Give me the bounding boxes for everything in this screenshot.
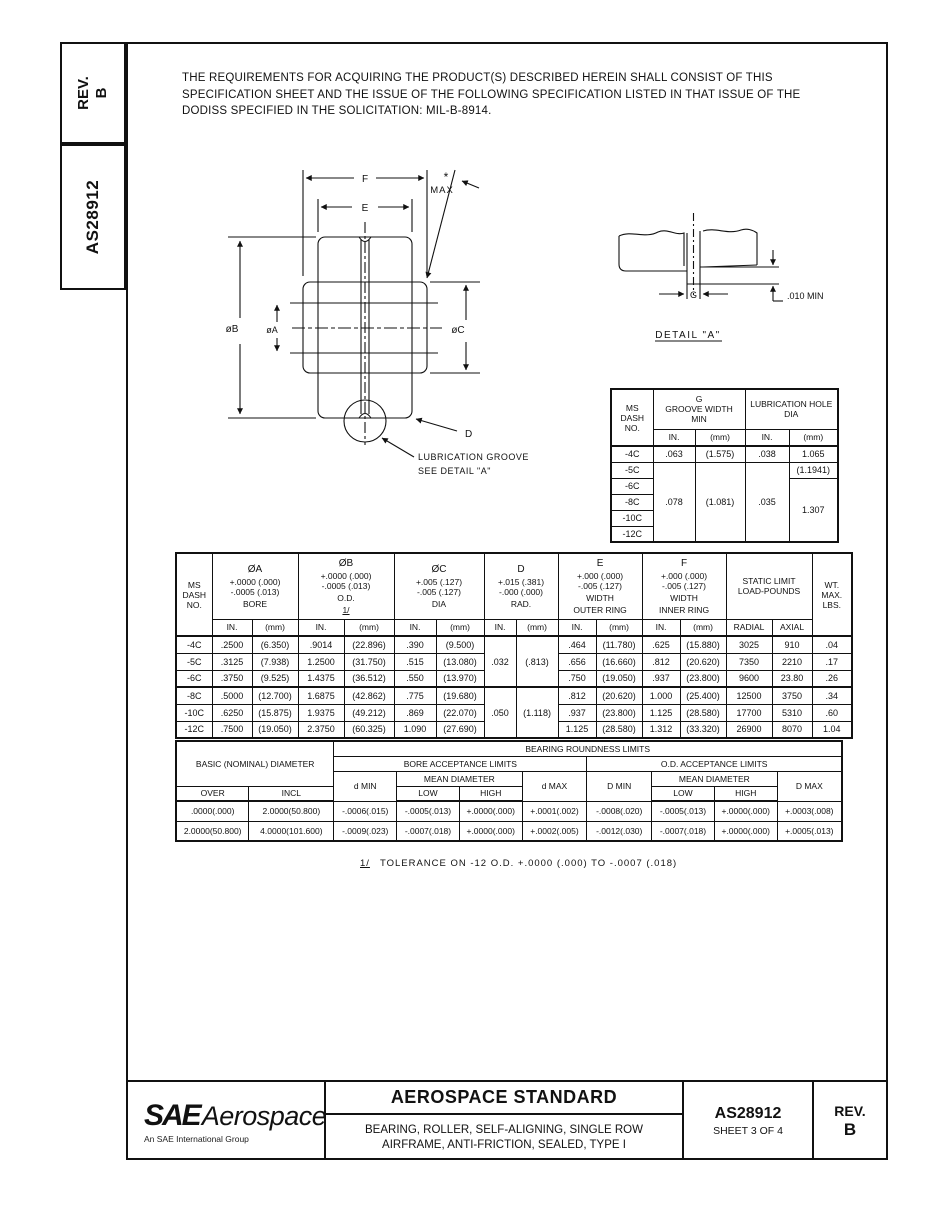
dim-col-d: D +.015 (.381) -.000 (.000) RAD. bbox=[484, 553, 558, 619]
dim-cell: .2500 bbox=[212, 636, 252, 653]
d-leader-line bbox=[416, 419, 457, 431]
dim-sub-f-in: IN. bbox=[642, 619, 680, 636]
dim-sub-b-mm: (mm) bbox=[344, 619, 394, 636]
dim-sub-a-mm: (mm) bbox=[252, 619, 298, 636]
dim-dash-12c: -12C bbox=[176, 721, 212, 738]
roundness-Dmin-header: D MIN bbox=[587, 771, 652, 801]
dim-col-f-name2: INNER RING bbox=[644, 605, 725, 615]
intro-paragraph: THE REQUIREMENTS FOR ACQUIRING THE PRODU… bbox=[182, 70, 862, 120]
dim-cell: .04 bbox=[812, 636, 852, 653]
roundness-cell: -.0005(.013) bbox=[397, 801, 460, 821]
dimension-table: MS DASH NO. ØA +.0000 (.000) -.0005 (.01… bbox=[175, 552, 853, 739]
dim-col-d-name: RAD. bbox=[486, 599, 557, 609]
roundness-cell: -.0012(.030) bbox=[587, 821, 652, 841]
roundness-cell: +.0000(.000) bbox=[714, 801, 777, 821]
sidebar-rev-box: REV. B bbox=[60, 42, 126, 144]
dim-cell: 1.000 bbox=[642, 687, 680, 704]
footnote: 1/TOLERANCE ON -12 O.D. +.0000 (.000) TO… bbox=[360, 858, 677, 869]
dim-sub-a-in: IN. bbox=[212, 619, 252, 636]
groove-table: MS DASH NO. G GROOVE WIDTH MIN LUBRICATI… bbox=[610, 388, 839, 543]
footer-sheet-number: SHEET 3 OF 4 bbox=[713, 1125, 783, 1137]
standard-subtitle-line1: BEARING, ROLLER, SELF-ALIGNING, SINGLE R… bbox=[365, 1123, 643, 1138]
dim-col-dash: MS DASH NO. bbox=[176, 553, 212, 636]
label-e: E bbox=[362, 203, 369, 214]
dim-cell: (42.862) bbox=[344, 687, 394, 704]
groove-g-in-merged: .078 bbox=[653, 462, 695, 542]
dim-cell: 12500 bbox=[726, 687, 772, 704]
sidebar-doc-number: AS28912 bbox=[83, 180, 103, 254]
dim-cell: 26900 bbox=[726, 721, 772, 738]
roundness-dmax-header: d MAX bbox=[522, 771, 587, 801]
roundness-Dmax-header: D MAX bbox=[777, 771, 842, 801]
dim-cell: (13.970) bbox=[436, 670, 484, 687]
dim-sub-d-mm: (mm) bbox=[516, 619, 558, 636]
dim-cell: .937 bbox=[642, 670, 680, 687]
roundness-cell: -.0006(.015) bbox=[334, 801, 397, 821]
roundness-table: BASIC (NOMINAL) DIAMETER BEARING ROUNDNE… bbox=[175, 740, 843, 842]
groove-subcol-in2: IN. bbox=[745, 429, 789, 446]
dim-sub-e-in: IN. bbox=[558, 619, 596, 636]
dim-sub-radial: RADIAL bbox=[726, 619, 772, 636]
groove-col-g: G GROOVE WIDTH MIN bbox=[653, 389, 745, 429]
dim-cell: (7.938) bbox=[252, 653, 298, 670]
groove-dash-8c: -8C bbox=[611, 494, 653, 510]
dim-sub-e-mm: (mm) bbox=[596, 619, 642, 636]
roundness-cell: +.0002(.005) bbox=[522, 821, 587, 841]
roundness-od-high-header: HIGH bbox=[714, 786, 777, 801]
dim-cell: .812 bbox=[642, 653, 680, 670]
label-dia-b: øB bbox=[226, 324, 239, 335]
dim-dash-4c: -4C bbox=[176, 636, 212, 653]
roundness-cell: -.0007(.018) bbox=[397, 821, 460, 841]
dim-cell: .550 bbox=[394, 670, 436, 687]
footer-center-cell: AEROSPACE STANDARD BEARING, ROLLER, SELF… bbox=[326, 1082, 684, 1160]
dim-cell: .390 bbox=[394, 636, 436, 653]
roundness-od-mean-header: MEAN DIAMETER bbox=[652, 771, 777, 786]
dim-col-d-tol-plus: +.015 (.381) bbox=[486, 577, 557, 587]
spec-sheet-page: REV. B AS28912 THE REQUIREMENTS FOR ACQU… bbox=[0, 0, 950, 1230]
dim-cell: (25.400) bbox=[680, 687, 726, 704]
sae-logo-text: SAE bbox=[144, 1099, 200, 1133]
dim-cell: .869 bbox=[394, 704, 436, 721]
dim-col-e-name2: OUTER RING bbox=[560, 605, 641, 615]
dim-cell: .3125 bbox=[212, 653, 252, 670]
dim-col-b-symbol: ØB bbox=[300, 558, 393, 569]
dim-cell: (36.512) bbox=[344, 670, 394, 687]
sidebar-rev-text: REV. B bbox=[75, 76, 111, 110]
dim-cell: (28.580) bbox=[680, 704, 726, 721]
detail-left-surface bbox=[619, 236, 687, 271]
dim-sub-c-in: IN. bbox=[394, 619, 436, 636]
label-detail-min: .010 MIN bbox=[787, 291, 824, 301]
footer-title-block: SAE Aerospace An SAE International Group… bbox=[126, 1080, 888, 1160]
roundness-bore-header: BORE ACCEPTANCE LIMITS bbox=[334, 756, 587, 771]
groove-dash-10c: -10C bbox=[611, 510, 653, 526]
dim-d-in-group2: .050 bbox=[484, 687, 516, 738]
roundness-cell: +.0000(.000) bbox=[714, 821, 777, 841]
footer-rev-label: REV. bbox=[834, 1103, 865, 1119]
footer-logo-cell: SAE Aerospace An SAE International Group bbox=[126, 1082, 326, 1160]
dim-col-e-name: WIDTH bbox=[560, 593, 641, 603]
dim-col-c-name: DIA bbox=[396, 599, 483, 609]
dim-cell: .7500 bbox=[212, 721, 252, 738]
dim-col-c: ØC +.005 (.127) -.005 (.127) DIA bbox=[394, 553, 484, 619]
dim-col-c-tol-plus: +.005 (.127) bbox=[396, 577, 483, 587]
detail-right-surface bbox=[700, 265, 779, 267]
dim-col-a: ØA +.0000 (.000) -.0005 (.013) BORE bbox=[212, 553, 298, 619]
groove-g-mm-4c: (1.575) bbox=[695, 446, 745, 462]
dim-col-e-symbol: E bbox=[560, 558, 641, 569]
dim-cell: (9.500) bbox=[436, 636, 484, 653]
dim-cell: .5000 bbox=[212, 687, 252, 704]
dim-sub-axial: AXIAL bbox=[772, 619, 812, 636]
dim-cell: (23.800) bbox=[596, 704, 642, 721]
dim-cell: (6.350) bbox=[252, 636, 298, 653]
footnote-text: TOLERANCE ON -12 O.D. +.0000 (.000) TO -… bbox=[380, 858, 677, 869]
dim-cell: (60.325) bbox=[344, 721, 394, 738]
dim-d-mm-group1: (.813) bbox=[516, 636, 558, 687]
label-lube-line2: SEE DETAIL "A" bbox=[418, 466, 491, 476]
table-row: -4C .2500(6.350) .9014(22.896) .390(9.50… bbox=[176, 636, 852, 653]
dim-col-a-symbol: ØA bbox=[214, 564, 297, 575]
dim-cell: 1.9375 bbox=[298, 704, 344, 721]
dim-cell: .515 bbox=[394, 653, 436, 670]
roundness-incl-header: INCL bbox=[249, 786, 334, 801]
footer-doc-number: AS28912 bbox=[715, 1105, 782, 1123]
label-detail-g: G bbox=[690, 290, 697, 300]
dim-cell: .17 bbox=[812, 653, 852, 670]
sidebar-doc-box: AS28912 bbox=[60, 144, 126, 290]
dim-cell: .26 bbox=[812, 670, 852, 687]
roundness-cell: +.0000(.000) bbox=[459, 801, 522, 821]
dim-col-d-tol-minus: -.000 (.000) bbox=[486, 587, 557, 597]
dim-cell: .60 bbox=[812, 704, 852, 721]
dim-cell: 7350 bbox=[726, 653, 772, 670]
dim-col-b-name: O.D. bbox=[300, 593, 393, 603]
dim-col-b-footnote-ref: 1/ bbox=[300, 605, 393, 615]
dim-dash-6c: -6C bbox=[176, 670, 212, 687]
standard-subtitle: BEARING, ROLLER, SELF-ALIGNING, SINGLE R… bbox=[326, 1115, 682, 1160]
roundness-cell: .0000(.000) bbox=[176, 801, 249, 821]
dim-cell: 2210 bbox=[772, 653, 812, 670]
dim-col-d-symbol: D bbox=[486, 564, 557, 575]
dim-cell: 2.3750 bbox=[298, 721, 344, 738]
footer-rev-value: B bbox=[844, 1120, 856, 1140]
dim-col-e: E +.000 (.000) -.005 (.127) WIDTH OUTER … bbox=[558, 553, 642, 619]
roundness-cell: -.0005(.013) bbox=[652, 801, 715, 821]
groove-hole-mm-5c: (1.1941) bbox=[789, 462, 838, 478]
roundness-cell: +.0001(.002) bbox=[522, 801, 587, 821]
dim-col-e-tol-plus: +.000 (.000) bbox=[560, 571, 641, 581]
dim-col-static: STATIC LIMIT LOAD-POUNDS bbox=[726, 553, 812, 619]
roundness-over-header: OVER bbox=[176, 786, 249, 801]
groove-subcol-mm: (mm) bbox=[695, 429, 745, 446]
roundness-cell: +.0000(.000) bbox=[459, 821, 522, 841]
dim-cell: (20.620) bbox=[680, 653, 726, 670]
dim-cell: 1.6875 bbox=[298, 687, 344, 704]
dim-cell: .656 bbox=[558, 653, 596, 670]
dim-cell: (13.080) bbox=[436, 653, 484, 670]
footnote-ref: 1/ bbox=[360, 858, 370, 869]
dim-cell: 910 bbox=[772, 636, 812, 653]
groove-hole-mm-merged: 1.307 bbox=[789, 478, 838, 542]
dim-col-b: ØB +.0000 (.000) -.0005 (.013) O.D. 1/ bbox=[298, 553, 394, 619]
groove-hole-in-merged: .035 bbox=[745, 462, 789, 542]
dim-dash-10c: -10C bbox=[176, 704, 212, 721]
dim-cell: (19.050) bbox=[596, 670, 642, 687]
dim-col-c-symbol: ØC bbox=[396, 564, 483, 575]
roundness-cell: 2.0000(50.800) bbox=[176, 821, 249, 841]
dim-cell: .775 bbox=[394, 687, 436, 704]
sae-aerospace-logo: SAE Aerospace bbox=[144, 1099, 324, 1133]
groove-subcol-in: IN. bbox=[653, 429, 695, 446]
dim-cell: .3750 bbox=[212, 670, 252, 687]
dim-col-f-name: WIDTH bbox=[644, 593, 725, 603]
lube-leader-line bbox=[382, 438, 414, 457]
dim-col-a-name: BORE bbox=[214, 599, 297, 609]
dim-sub-b-in: IN. bbox=[298, 619, 344, 636]
roundness-cell: -.0007(.018) bbox=[652, 821, 715, 841]
roundness-cell: +.0003(.008) bbox=[777, 801, 842, 821]
dim-cell: 1.090 bbox=[394, 721, 436, 738]
dim-cell: .464 bbox=[558, 636, 596, 653]
dim-cell: .34 bbox=[812, 687, 852, 704]
label-detail-title: DETAIL "A" bbox=[655, 330, 720, 341]
dim-cell: .9014 bbox=[298, 636, 344, 653]
roundness-cell: 4.0000(101.600) bbox=[249, 821, 334, 841]
dim-cell: (23.800) bbox=[680, 670, 726, 687]
detail-right-block-top bbox=[703, 229, 757, 265]
dim-col-f-symbol: F bbox=[644, 558, 725, 569]
label-asterisk: * bbox=[444, 170, 449, 184]
table-row: -5C .078 (1.081) .035 (1.1941) bbox=[611, 462, 838, 478]
roundness-bore-low-header: LOW bbox=[397, 786, 460, 801]
dim-col-f: F +.000 (.000) -.005 (.127) WIDTH INNER … bbox=[642, 553, 726, 619]
groove-dash-5c: -5C bbox=[611, 462, 653, 478]
dim-col-f-tol-minus: -.005 (.127) bbox=[644, 581, 725, 591]
footer-number-cell: AS28912 SHEET 3 OF 4 bbox=[684, 1082, 814, 1160]
groove-subcol-mm2: (mm) bbox=[789, 429, 838, 446]
dim-cell: (9.525) bbox=[252, 670, 298, 687]
dim-col-b-tol-plus: +.0000 (.000) bbox=[300, 571, 393, 581]
dim-cell: (20.620) bbox=[596, 687, 642, 704]
dim-cell: 1.2500 bbox=[298, 653, 344, 670]
roundness-cell: 2.0000(50.800) bbox=[249, 801, 334, 821]
dim-col-c-tol-minus: -.005 (.127) bbox=[396, 587, 483, 597]
groove-col-dash: MS DASH NO. bbox=[611, 389, 653, 446]
dim-cell: (15.875) bbox=[252, 704, 298, 721]
roundness-od-header: O.D. ACCEPTANCE LIMITS bbox=[587, 756, 842, 771]
dim-cell: 1.04 bbox=[812, 721, 852, 738]
dim-cell: .812 bbox=[558, 687, 596, 704]
dim-sub-f-mm: (mm) bbox=[680, 619, 726, 636]
dim-cell: .937 bbox=[558, 704, 596, 721]
dim-cell: (11.780) bbox=[596, 636, 642, 653]
dim-d-mm-group2: (1.118) bbox=[516, 687, 558, 738]
label-max: MAX bbox=[430, 185, 454, 196]
dim-col-a-tol-plus: +.0000 (.000) bbox=[214, 577, 297, 587]
groove-hole-mm-4c: 1.065 bbox=[789, 446, 838, 462]
groove-hole-in-4c: .038 bbox=[745, 446, 789, 462]
dim-col-wt: WT. MAX. LBS. bbox=[812, 553, 852, 636]
roundness-dmin-header: d MIN bbox=[334, 771, 397, 801]
table-row: -4C .063 (1.575) .038 1.065 bbox=[611, 446, 838, 462]
dim-cell: 1.312 bbox=[642, 721, 680, 738]
dim-cell: 5310 bbox=[772, 704, 812, 721]
groove-col-hole: LUBRICATION HOLE DIA bbox=[745, 389, 838, 429]
roundness-basic-header: BASIC (NOMINAL) DIAMETER bbox=[176, 741, 334, 786]
dim-d-in-group1: .032 bbox=[484, 636, 516, 687]
label-f: F bbox=[362, 174, 368, 185]
dim-cell: 17700 bbox=[726, 704, 772, 721]
dim-cell: (12.700) bbox=[252, 687, 298, 704]
label-dia-a: øA bbox=[266, 325, 278, 335]
roundness-bore-high-header: HIGH bbox=[459, 786, 522, 801]
table-row: -8C .5000(12.700) 1.6875(42.862) .775(19… bbox=[176, 687, 852, 704]
dim-cell: (19.050) bbox=[252, 721, 298, 738]
dim-cell: 3025 bbox=[726, 636, 772, 653]
dim-dash-8c: -8C bbox=[176, 687, 212, 704]
dim-sub-c-mm: (mm) bbox=[436, 619, 484, 636]
dim-cell: (27.690) bbox=[436, 721, 484, 738]
dim-cell: .625 bbox=[642, 636, 680, 653]
dim-cell: 1.125 bbox=[558, 721, 596, 738]
dim-cell: (22.896) bbox=[344, 636, 394, 653]
dim-cell: 8070 bbox=[772, 721, 812, 738]
dim-cell: 23.80 bbox=[772, 670, 812, 687]
roundness-od-low-header: LOW bbox=[652, 786, 715, 801]
dim-cell: 9600 bbox=[726, 670, 772, 687]
label-lube-line1: LUBRICATION GROOVE bbox=[418, 452, 529, 462]
groove-g-in-4c: .063 bbox=[653, 446, 695, 462]
dim-cell: (49.212) bbox=[344, 704, 394, 721]
roundness-bore-mean-header: MEAN DIAMETER bbox=[397, 771, 522, 786]
dim-cell: (15.880) bbox=[680, 636, 726, 653]
standard-subtitle-line2: AIRFRAME, ANTI-FRICTION, SEALED, TYPE I bbox=[382, 1138, 626, 1153]
standard-title: AEROSPACE STANDARD bbox=[326, 1082, 682, 1115]
dim-cell: 1.125 bbox=[642, 704, 680, 721]
dim-cell: .750 bbox=[558, 670, 596, 687]
dim-cell: (16.660) bbox=[596, 653, 642, 670]
groove-dash-4c: -4C bbox=[611, 446, 653, 462]
dim-cell: 3750 bbox=[772, 687, 812, 704]
dim-col-e-tol-minus: -.005 (.127) bbox=[560, 581, 641, 591]
dim-cell: (19.680) bbox=[436, 687, 484, 704]
logo-tagline: An SAE International Group bbox=[144, 1134, 324, 1144]
roundness-title-header: BEARING ROUNDNESS LIMITS bbox=[334, 741, 842, 756]
dim-cell: (33.320) bbox=[680, 721, 726, 738]
dim-sub-d-in: IN. bbox=[484, 619, 516, 636]
groove-g-mm-merged: (1.081) bbox=[695, 462, 745, 542]
roundness-cell: +.0005(.013) bbox=[777, 821, 842, 841]
dim-cell: .6250 bbox=[212, 704, 252, 721]
dim-dash-5c: -5C bbox=[176, 653, 212, 670]
aerospace-logo-text: Aerospace bbox=[202, 1101, 327, 1132]
dim-cell: (28.580) bbox=[596, 721, 642, 738]
dim-cell: 1.4375 bbox=[298, 670, 344, 687]
footer-rev-cell: REV. B bbox=[814, 1082, 886, 1160]
dim-col-a-tol-minus: -.0005 (.013) bbox=[214, 587, 297, 597]
label-d: D bbox=[465, 429, 472, 440]
dim-col-b-tol-minus: -.0005 (.013) bbox=[300, 581, 393, 591]
dim-col-f-tol-plus: +.000 (.000) bbox=[644, 571, 725, 581]
dim-cell: (22.070) bbox=[436, 704, 484, 721]
roundness-cell: -.0008(.020) bbox=[587, 801, 652, 821]
label-dia-c: øC bbox=[451, 325, 464, 336]
roundness-cell: -.0009(.023) bbox=[334, 821, 397, 841]
table-row: 2.0000(50.800) 4.0000(101.600) -.0009(.0… bbox=[176, 821, 842, 841]
dim-cell: (31.750) bbox=[344, 653, 394, 670]
detail-left-block-top bbox=[619, 231, 684, 266]
groove-dash-12c: -12C bbox=[611, 526, 653, 542]
groove-dash-6c: -6C bbox=[611, 478, 653, 494]
max-pointer-arrow bbox=[462, 181, 479, 188]
table-row: .0000(.000) 2.0000(50.800) -.0006(.015) … bbox=[176, 801, 842, 821]
